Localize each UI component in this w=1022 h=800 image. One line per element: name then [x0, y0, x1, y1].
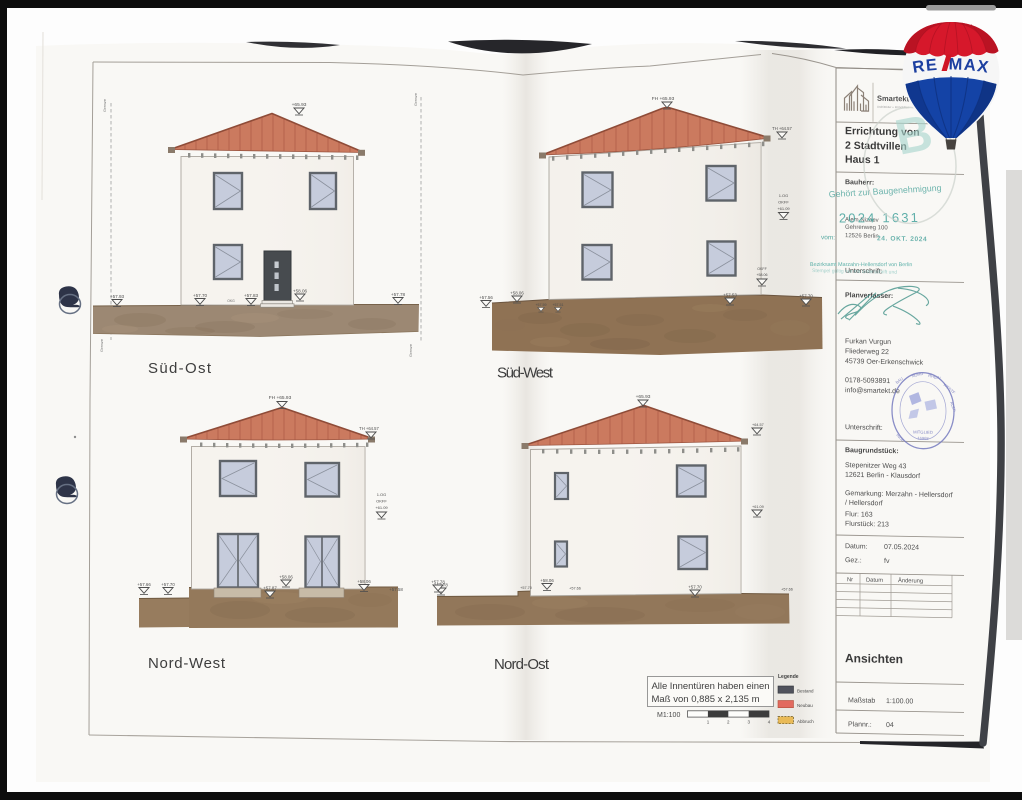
svg-text:+57.83: +57.83 — [244, 293, 259, 298]
svg-text:MITGLIED: MITGLIED — [913, 429, 933, 434]
svg-text:Smartekt: Smartekt — [877, 94, 910, 104]
svg-text:+57.70: +57.70 — [520, 586, 532, 590]
svg-text:fv: fv — [884, 558, 890, 565]
svg-text:+57.53: +57.53 — [723, 293, 737, 298]
svg-text:vom:: vom: — [821, 234, 835, 241]
svg-text:Süd-Ost: Süd-Ost — [148, 360, 212, 377]
svg-text:12621 Berlin - Klausdorf: 12621 Berlin - Klausdorf — [845, 472, 920, 480]
svg-text:1.OG: 1.OG — [779, 193, 789, 198]
svg-text:+58.06: +58.06 — [540, 578, 554, 583]
svg-text:+58.06: +58.06 — [279, 575, 293, 580]
svg-text:Änderung: Änderung — [898, 577, 923, 584]
svg-text:12526 Berlin: 12526 Berlin — [845, 233, 879, 240]
svg-text:Plannr.:: Plannr.: — [848, 721, 872, 728]
svg-text:Fliederweg 22: Fliederweg 22 — [845, 348, 889, 356]
svg-text:Maßstab: Maßstab — [848, 697, 875, 705]
svg-text:24. OKT. 2024: 24. OKT. 2024 — [877, 235, 927, 243]
svg-text:Furkan Vurgun: Furkan Vurgun — [845, 338, 891, 346]
svg-text:Nord-Ost: Nord-Ost — [494, 656, 550, 673]
svg-text:Maß von 0,885 x 2,135 m: Maß von 0,885 x 2,135 m — [652, 694, 760, 705]
svg-text:OKFF: OKFF — [757, 267, 767, 271]
svg-text:+57.58: +57.58 — [389, 587, 403, 592]
svg-text:+58.06: +58.06 — [756, 273, 767, 277]
svg-text:Nr: Nr — [847, 577, 853, 583]
svg-text:07.05.2024: 07.05.2024 — [884, 544, 919, 552]
svg-text:Baugrundstück:: Baugrundstück: — [845, 447, 899, 455]
svg-text:M1:100: M1:100 — [657, 712, 680, 719]
svg-text:+57.93: +57.93 — [110, 294, 125, 299]
svg-text:+57.66: +57.66 — [137, 582, 151, 587]
svg-text:Süd-West: Süd-West — [497, 365, 554, 382]
svg-text:Datum: Datum — [866, 578, 883, 584]
svg-text:Nord-West: Nord-West — [148, 655, 226, 672]
svg-text:16968: 16968 — [917, 436, 929, 441]
svg-text:OKFF: OKFF — [376, 499, 387, 504]
svg-text:+57.78: +57.78 — [391, 292, 406, 297]
svg-text:1:100.00: 1:100.00 — [886, 698, 913, 706]
svg-text:Flur: 163: Flur: 163 — [845, 511, 873, 519]
svg-text:+57.56: +57.56 — [479, 295, 493, 300]
svg-text:OKG: OKG — [227, 299, 235, 303]
svg-text:/ Hellersdorf: / Hellersdorf — [845, 500, 883, 508]
svg-text:+57.70: +57.70 — [161, 582, 175, 587]
svg-text:+58.06: +58.06 — [293, 289, 308, 294]
svg-text:Neubau: Neubau — [797, 703, 813, 708]
svg-text:TH +64.57: TH +64.57 — [359, 426, 379, 431]
svg-text:+57.66: +57.66 — [781, 588, 793, 592]
svg-text:Ansichten: Ansichten — [845, 651, 903, 666]
svg-text:info@smartekt.de: info@smartekt.de — [845, 387, 900, 395]
svg-text:Grenze: Grenze — [102, 98, 107, 112]
svg-text:+61.09: +61.09 — [752, 505, 764, 509]
svg-text:+57.70: +57.70 — [688, 585, 702, 590]
svg-text:+57.51: +57.51 — [552, 303, 563, 307]
svg-text:FH +65.93: FH +65.93 — [269, 395, 292, 401]
svg-text:+57.70: +57.70 — [799, 294, 813, 299]
svg-text:Bauherr:: Bauherr: — [845, 179, 874, 187]
svg-text:Stepenitzer Weg 43: Stepenitzer Weg 43 — [845, 462, 906, 470]
svg-text:Legende: Legende — [778, 674, 799, 680]
svg-text:+61.09: +61.09 — [375, 505, 388, 510]
svg-text:Flurstück: 213: Flurstück: 213 — [845, 521, 889, 529]
svg-text:+64.57: +64.57 — [752, 423, 764, 427]
svg-text:+57.70: +57.70 — [193, 293, 208, 298]
svg-text:+57.87: +57.87 — [263, 586, 277, 591]
svg-text:+58.06: +58.06 — [510, 291, 524, 296]
svg-text:Unterschrift:: Unterschrift: — [845, 424, 883, 432]
svg-text:Haus 1: Haus 1 — [845, 154, 880, 167]
svg-text:+57.59: +57.59 — [535, 303, 546, 307]
svg-text:Datum:: Datum: — [845, 543, 868, 550]
svg-text:Alle Innentüren haben einen: Alle Innentüren haben einen — [652, 681, 770, 692]
svg-text:OKFF: OKFF — [778, 200, 789, 205]
svg-text:+61.09: +61.09 — [777, 206, 790, 211]
svg-text:Gez.:: Gez.: — [845, 557, 862, 564]
svg-text:1.OG: 1.OG — [377, 492, 387, 497]
svg-text:Grenze: Grenze — [408, 343, 413, 357]
svg-text:Abbruch: Abbruch — [797, 719, 814, 724]
svg-text:0178-5093891: 0178-5093891 — [845, 377, 890, 385]
svg-text:+57.66: +57.66 — [569, 587, 581, 591]
svg-text:+57.78: +57.78 — [431, 580, 445, 585]
svg-text:FH +65.93: FH +65.93 — [652, 96, 675, 102]
svg-text:+65.93: +65.93 — [636, 394, 651, 400]
svg-text:04: 04 — [886, 722, 894, 729]
svg-text:Grenze: Grenze — [99, 338, 104, 352]
svg-text:Grenze: Grenze — [413, 92, 418, 106]
svg-text:TH +64.57: TH +64.57 — [772, 126, 792, 131]
svg-text:Gehrenweg 100: Gehrenweg 100 — [845, 225, 888, 232]
svg-text:+65.93: +65.93 — [292, 102, 307, 108]
svg-text:+58.06: +58.06 — [357, 579, 371, 584]
svg-text:Bestand: Bestand — [797, 689, 814, 694]
